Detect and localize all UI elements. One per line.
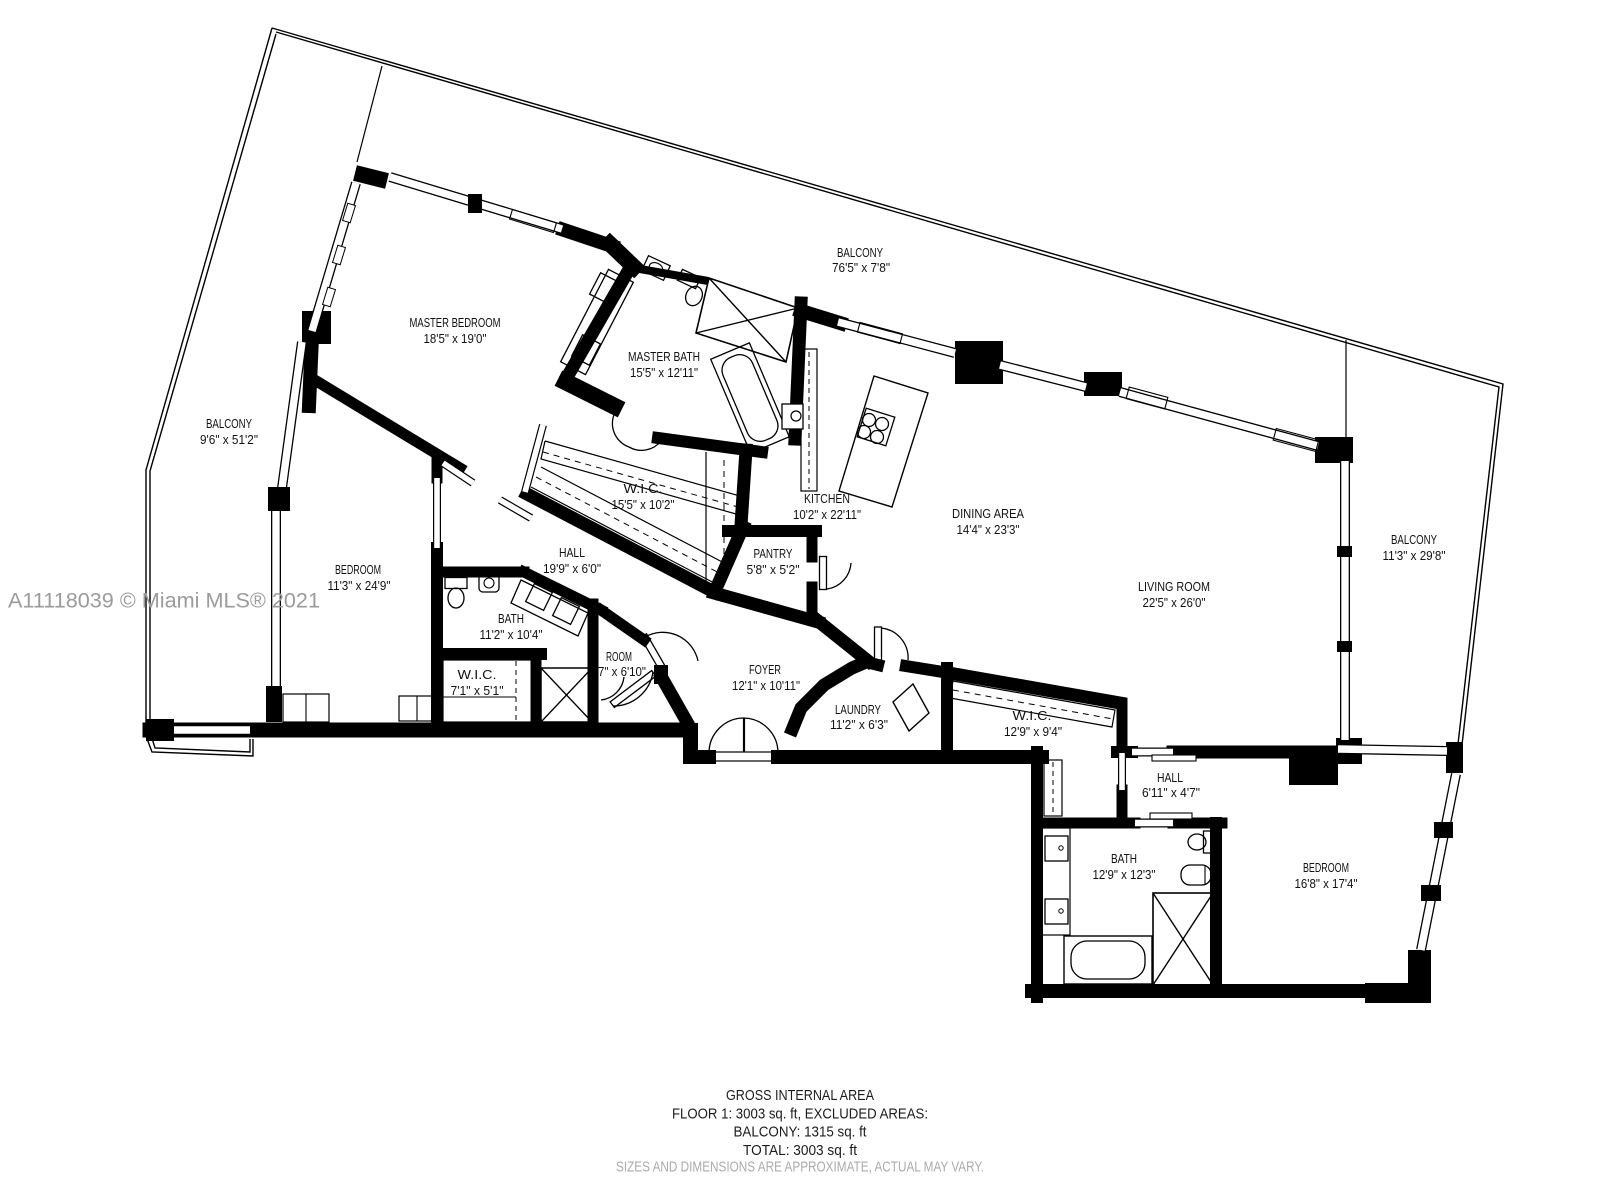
svg-text:12'1" x 10'11": 12'1" x 10'11" bbox=[732, 679, 800, 693]
svg-text:DINING AREA: DINING AREA bbox=[952, 507, 1025, 521]
svg-text:11'3" x 24'9": 11'3" x 24'9" bbox=[328, 579, 391, 593]
svg-text:12'9" x 12'3": 12'9" x 12'3" bbox=[1093, 868, 1156, 882]
svg-text:19'9" x 6'0": 19'9" x 6'0" bbox=[543, 562, 601, 576]
svg-text:GROSS INTERNAL AREA: GROSS INTERNAL AREA bbox=[726, 1088, 874, 1104]
svg-text:TOTAL: 3003 sq. ft: TOTAL: 3003 sq. ft bbox=[743, 1143, 857, 1159]
svg-text:7'1" x 5'1": 7'1" x 5'1" bbox=[451, 684, 504, 698]
svg-text:BATH: BATH bbox=[1111, 852, 1137, 866]
svg-text:9'6" x 51'2": 9'6" x 51'2" bbox=[200, 433, 258, 447]
svg-text:MASTER BATH: MASTER BATH bbox=[628, 350, 700, 364]
svg-text:HALL: HALL bbox=[1157, 771, 1183, 785]
svg-text:BALCONY: 1315 sq. ft: BALCONY: 1315 sq. ft bbox=[734, 1125, 867, 1141]
svg-text:PANTRY: PANTRY bbox=[754, 547, 794, 561]
svg-text:MASTER BEDROOM: MASTER BEDROOM bbox=[410, 316, 501, 330]
svg-text:HALL: HALL bbox=[559, 546, 585, 560]
svg-text:BEDROOM: BEDROOM bbox=[1303, 861, 1349, 875]
svg-text:SIZES AND DIMENSIONS ARE APPRO: SIZES AND DIMENSIONS ARE APPROXIMATE, AC… bbox=[616, 1160, 984, 1176]
svg-text:11'2" x 10'4": 11'2" x 10'4" bbox=[480, 628, 543, 642]
svg-text:BALCONY: BALCONY bbox=[206, 417, 253, 431]
svg-text:15'5" x 12'11": 15'5" x 12'11" bbox=[630, 366, 698, 380]
svg-text:A11118039 © Miami MLS® 2021: A11118039 © Miami MLS® 2021 bbox=[8, 590, 320, 613]
svg-text:11'3" x 29'8": 11'3" x 29'8" bbox=[1383, 549, 1446, 563]
svg-text:W.I.C.: W.I.C. bbox=[1013, 709, 1052, 723]
svg-text:BALCONY: BALCONY bbox=[837, 246, 884, 260]
svg-text:14'4" x 23'3": 14'4" x 23'3" bbox=[957, 523, 1020, 537]
svg-text:ROOM: ROOM bbox=[606, 650, 632, 664]
svg-text:7" x 6'10": 7" x 6'10" bbox=[598, 665, 646, 679]
svg-text:W.I.C.: W.I.C. bbox=[458, 668, 497, 682]
svg-text:76'5" x 7'8": 76'5" x 7'8" bbox=[832, 261, 890, 275]
svg-text:W.I.C.: W.I.C. bbox=[624, 482, 663, 496]
svg-text:FLOOR 1: 3003 sq. ft, EXCLUDED: FLOOR 1: 3003 sq. ft, EXCLUDED AREAS: bbox=[672, 1107, 928, 1123]
svg-text:LAUNDRY: LAUNDRY bbox=[835, 703, 882, 717]
svg-text:11'2" x 6'3": 11'2" x 6'3" bbox=[830, 718, 888, 732]
svg-text:BEDROOM: BEDROOM bbox=[335, 563, 381, 577]
svg-text:6'11" x 4'7": 6'11" x 4'7" bbox=[1142, 786, 1200, 800]
svg-text:KITCHEN: KITCHEN bbox=[804, 492, 850, 506]
svg-text:BALCONY: BALCONY bbox=[1391, 533, 1438, 547]
svg-text:FOYER: FOYER bbox=[749, 663, 781, 677]
svg-text:10'2" x 22'11": 10'2" x 22'11" bbox=[793, 508, 861, 522]
svg-text:18'5" x 19'0": 18'5" x 19'0" bbox=[424, 332, 487, 346]
svg-text:15'5" x 10'2": 15'5" x 10'2" bbox=[612, 498, 675, 512]
svg-text:22'5" x 26'0": 22'5" x 26'0" bbox=[1143, 596, 1206, 610]
svg-text:BATH: BATH bbox=[498, 612, 524, 626]
svg-text:LIVING ROOM: LIVING ROOM bbox=[1138, 580, 1210, 594]
svg-text:16'8" x 17'4": 16'8" x 17'4" bbox=[1295, 877, 1358, 891]
svg-text:12'9" x 9'4": 12'9" x 9'4" bbox=[1004, 725, 1062, 739]
svg-text:5'8" x 5'2": 5'8" x 5'2" bbox=[747, 563, 800, 577]
